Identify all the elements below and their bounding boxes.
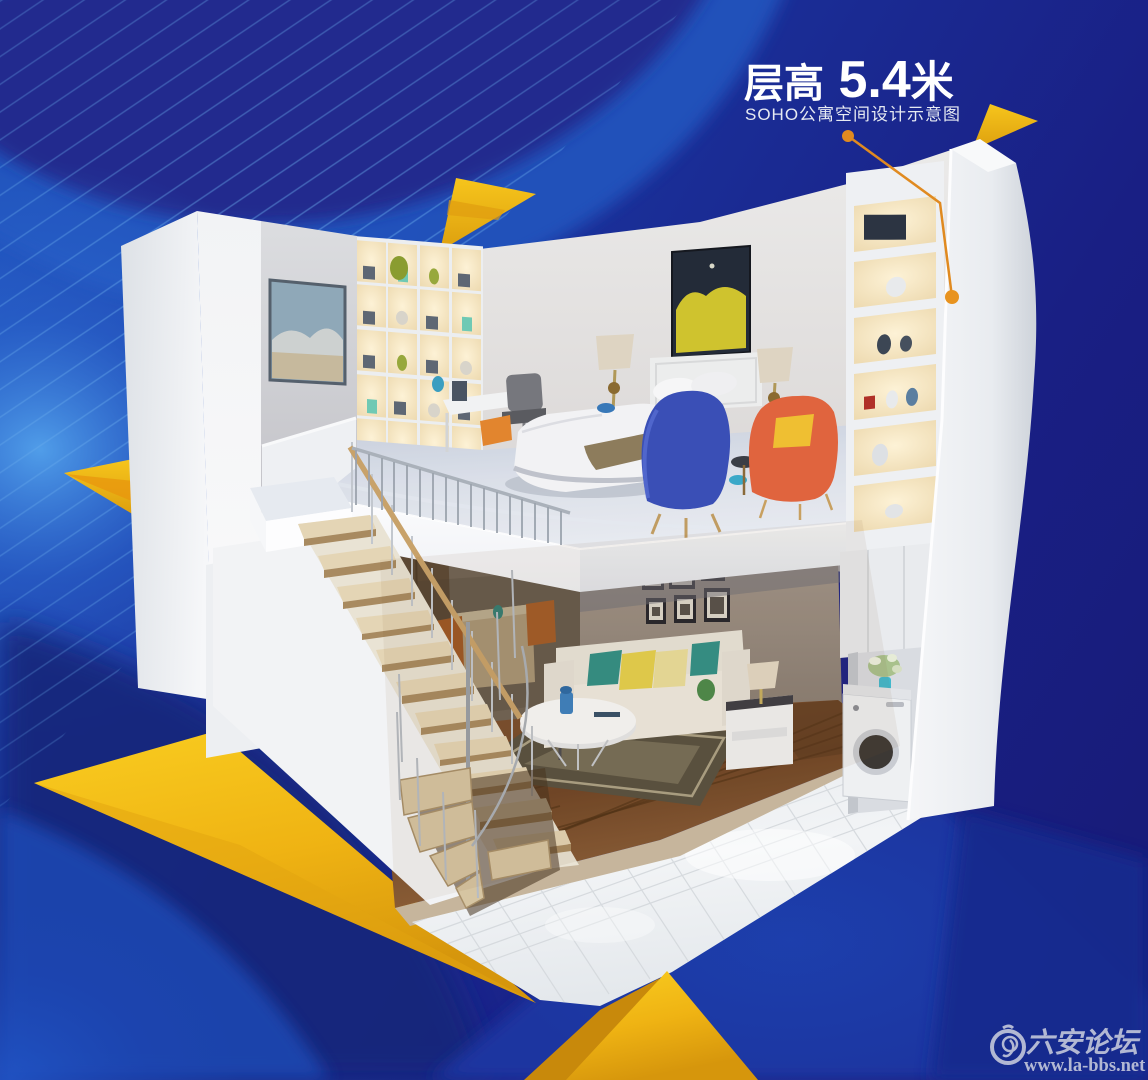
svg-text:SOHO公寓空间设计示意图: SOHO公寓空间设计示意图 — [745, 105, 961, 124]
svg-text:www.la-bbs.net: www.la-bbs.net — [1024, 1056, 1146, 1076]
svg-text:六安论坛: 六安论坛 — [1026, 1027, 1142, 1058]
